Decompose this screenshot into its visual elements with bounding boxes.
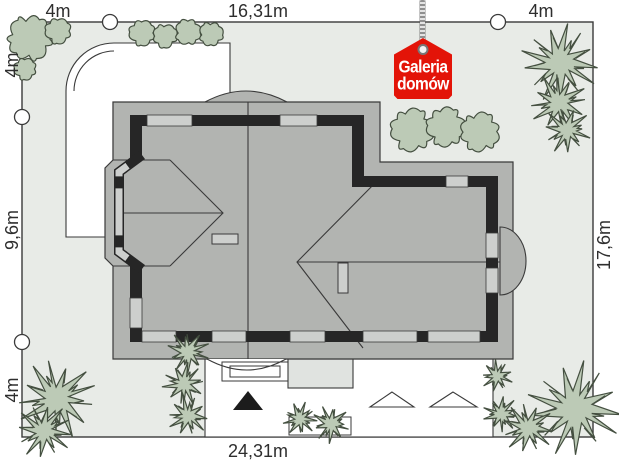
site-plan-page: 4m 16,31m 4m 4m 9,6m 4m 17,6m 24,31m Gal… xyxy=(0,0,619,463)
site-plan-drawing xyxy=(0,0,619,463)
badge-line2: domów xyxy=(397,75,449,94)
chimney xyxy=(212,234,238,244)
badge-eyelet-icon xyxy=(418,44,429,55)
dim-left-top: 4m xyxy=(3,52,21,77)
dim-left-bottom: 4m xyxy=(3,377,21,402)
terrace-slab xyxy=(288,359,353,388)
chimney xyxy=(338,263,348,293)
badge-string xyxy=(420,0,425,45)
dim-top-left: 4m xyxy=(45,2,70,20)
dim-top-center: 16,31m xyxy=(228,2,288,20)
dim-left-middle: 9,6m xyxy=(3,210,21,250)
dim-bottom: 24,31m xyxy=(228,442,288,460)
dim-top-right: 4m xyxy=(528,2,553,20)
dim-right-side: 17,6m xyxy=(595,220,613,270)
